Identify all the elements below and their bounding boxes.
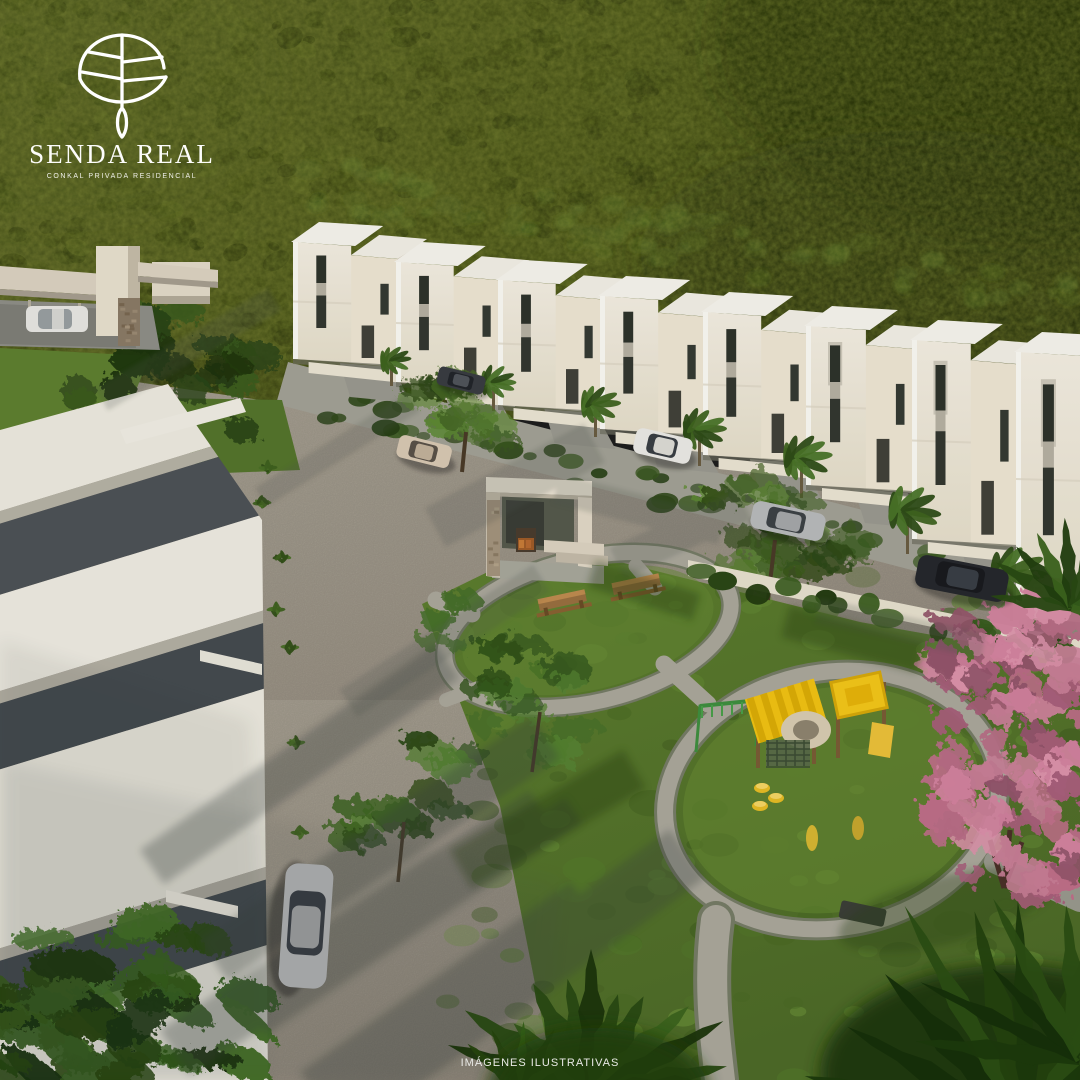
svg-text:IMÁGENES ILUSTRATIVAS: IMÁGENES ILUSTRATIVAS xyxy=(461,1056,620,1069)
svg-text:CONKAL PRIVADA RESIDENCIAL: CONKAL PRIVADA RESIDENCIAL xyxy=(47,173,198,180)
svg-text:SENDA REAL: SENDA REAL xyxy=(29,139,215,169)
